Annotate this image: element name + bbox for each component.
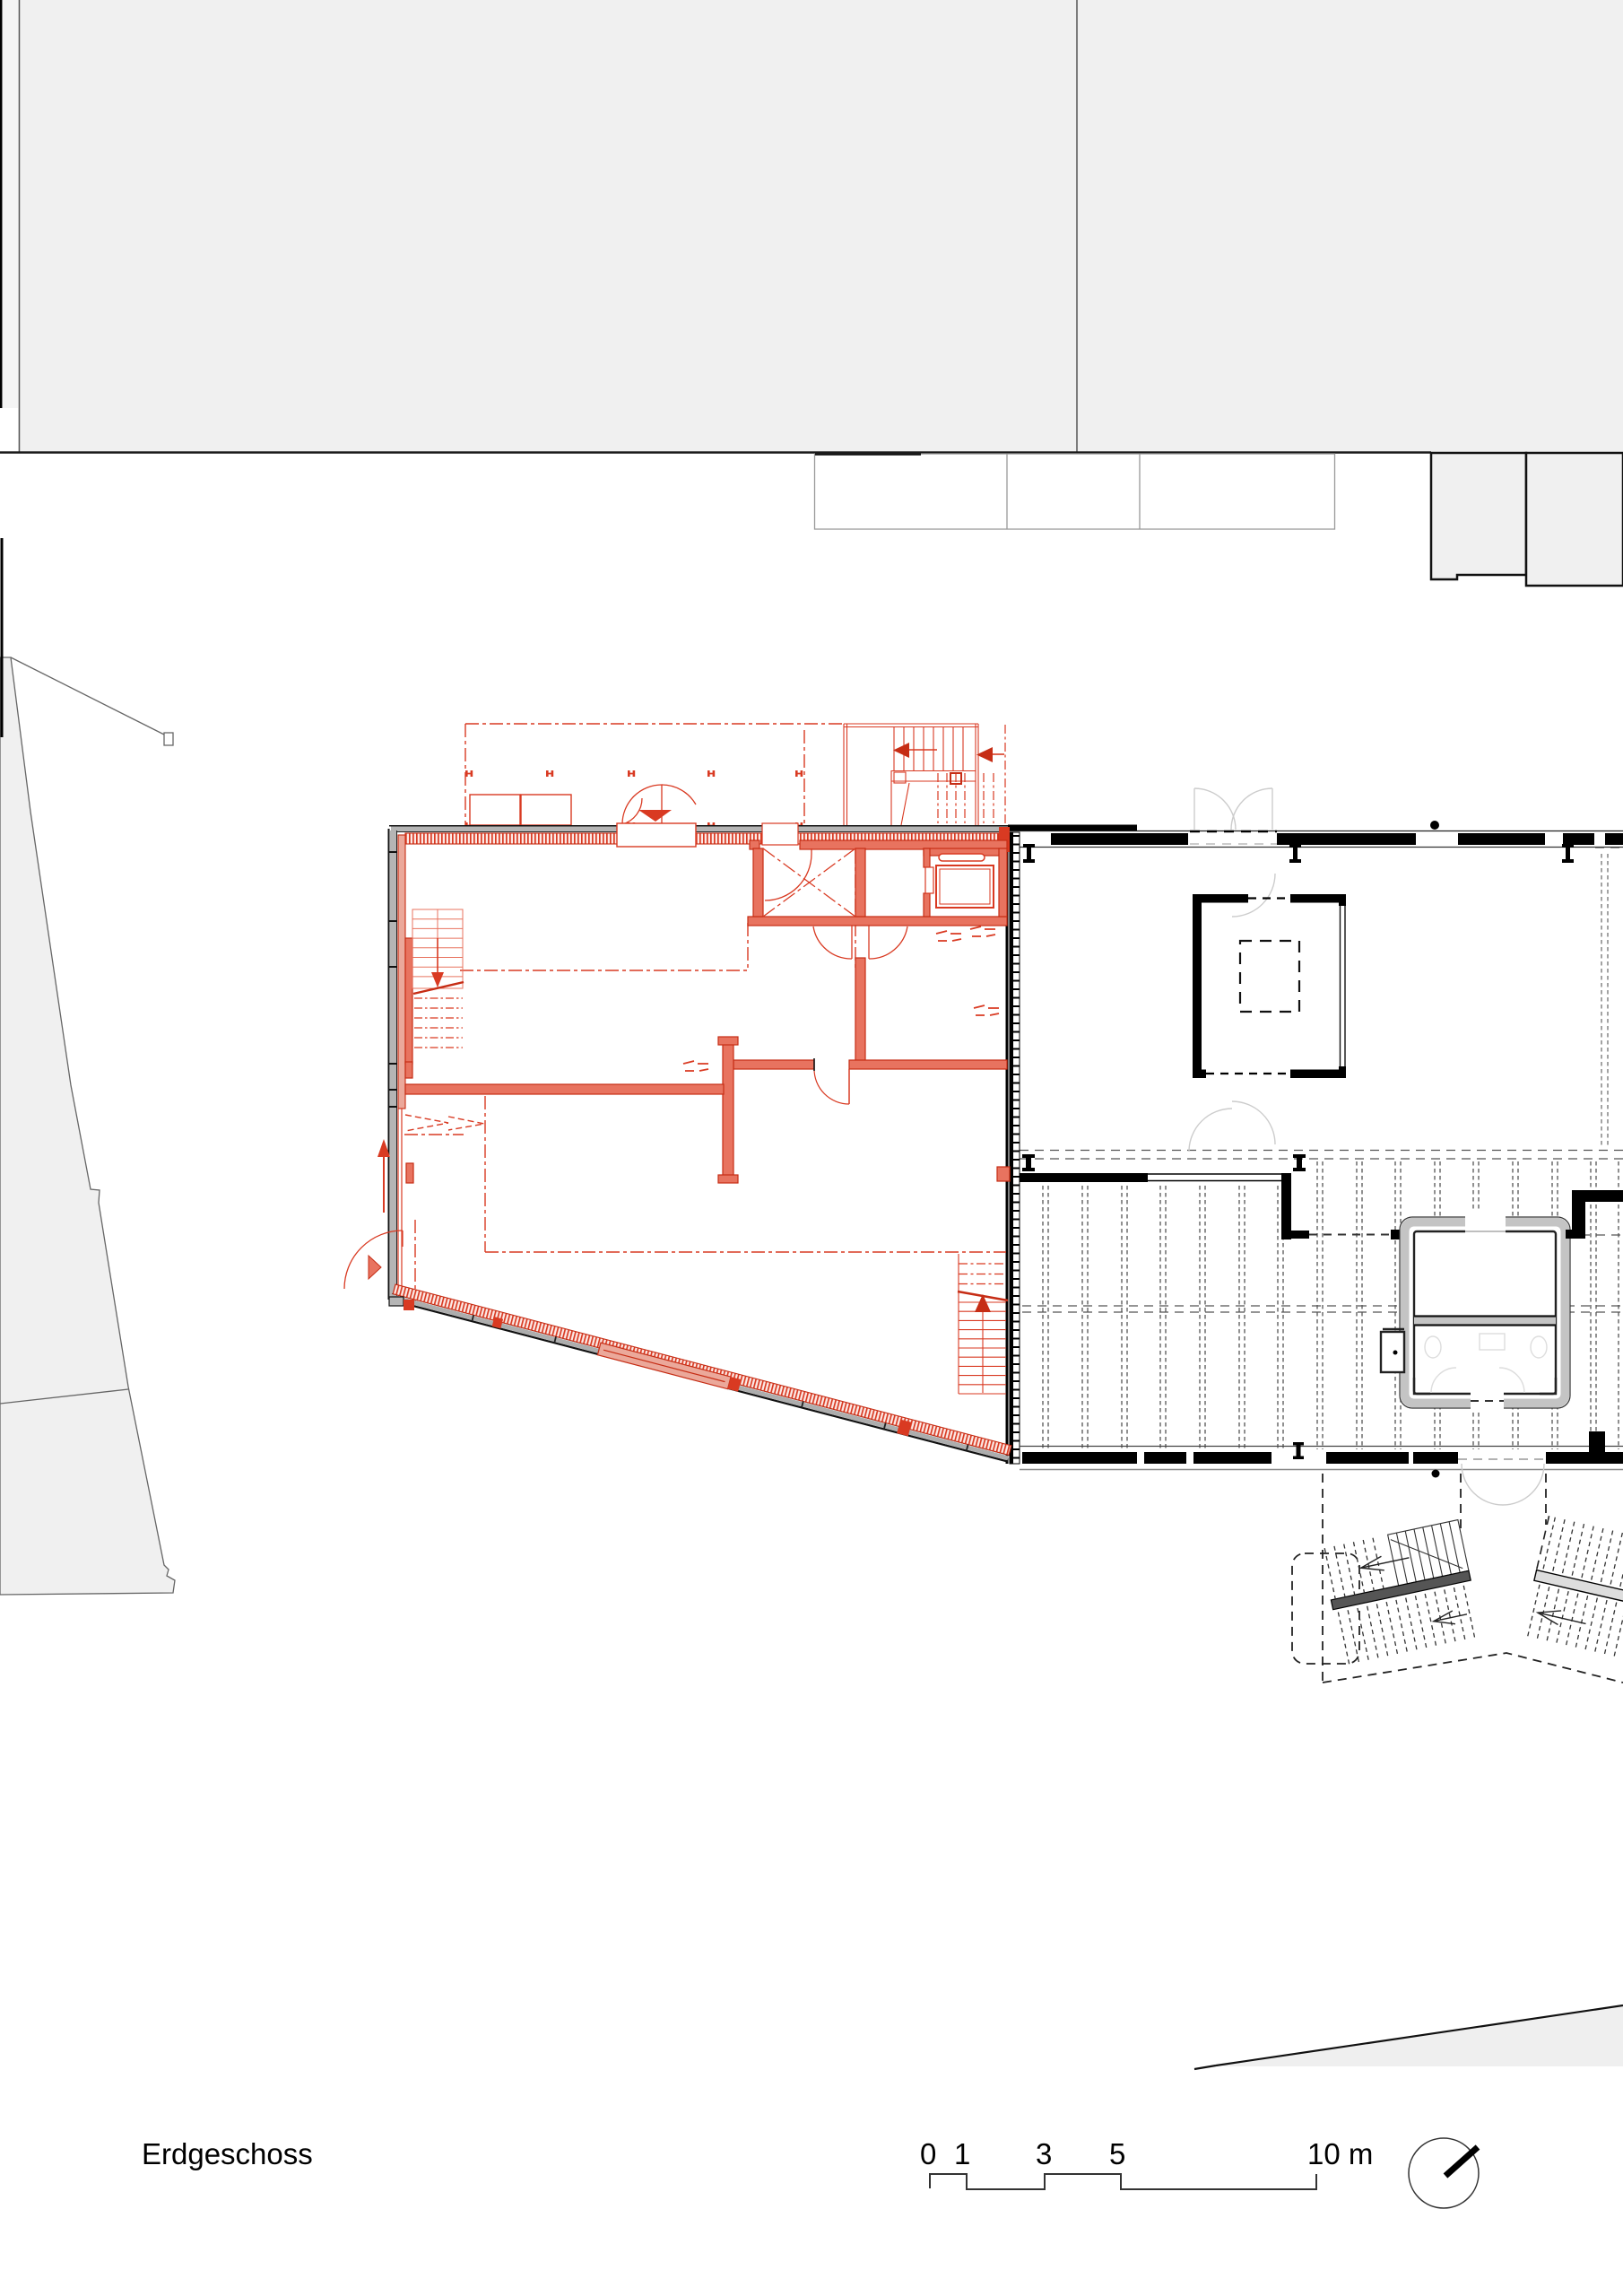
svg-text:1: 1 <box>954 2137 970 2170</box>
svg-text:3: 3 <box>1036 2137 1052 2170</box>
svg-text:0: 0 <box>920 2137 936 2170</box>
svg-text:5: 5 <box>1109 2137 1125 2170</box>
svg-text:10 m: 10 m <box>1307 2137 1373 2170</box>
svg-text:Erdgeschoss: Erdgeschoss <box>142 2137 313 2170</box>
